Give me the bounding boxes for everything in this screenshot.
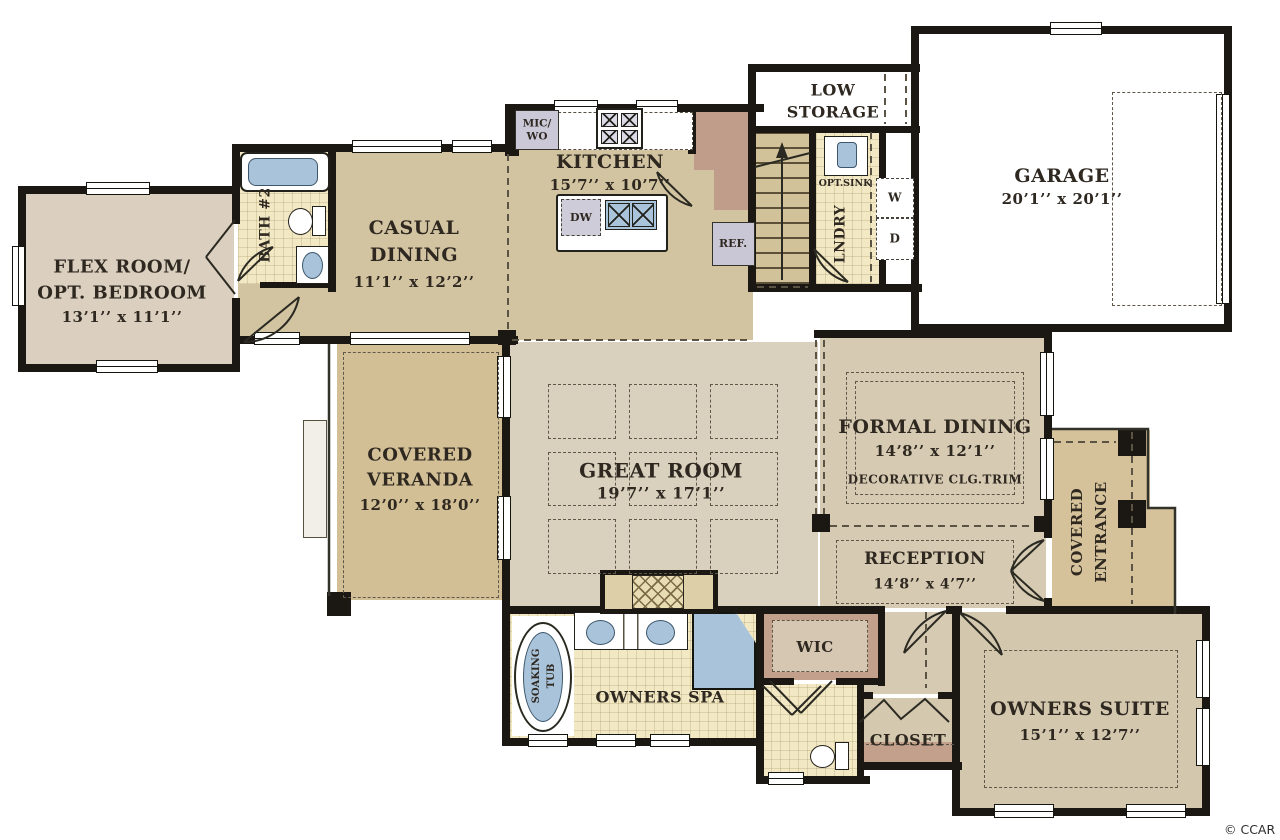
window	[254, 332, 300, 345]
floor-plan: FLEX ROOM/ OPT. BEDROOM 13’1’’ x 11’1’’ …	[0, 0, 1280, 840]
reception-dims: 14’8’’ x 4’7’’	[873, 578, 976, 593]
fireplace-hatch	[632, 575, 684, 609]
formal-dining-note: DECORATIVE CLG.TRIM	[848, 474, 1023, 487]
burner-icon	[601, 113, 618, 127]
watermark: © CCAR	[1224, 822, 1275, 837]
wall	[502, 416, 510, 498]
flex-room-label2: OPT. BEDROOM	[37, 285, 207, 304]
window	[994, 804, 1054, 818]
burner-icon	[621, 130, 638, 144]
window	[1050, 22, 1102, 35]
room-floor	[714, 168, 750, 210]
wall	[1044, 330, 1052, 354]
veranda-label: COVERED	[367, 447, 472, 466]
window	[86, 182, 150, 195]
window	[768, 772, 804, 785]
room-floor	[756, 132, 811, 284]
wall	[756, 606, 764, 784]
wall	[1044, 416, 1052, 440]
garage-door-clearance	[1112, 92, 1222, 306]
cooktop	[596, 108, 643, 149]
wall	[1006, 606, 1210, 614]
opt-sink-label: OPT.SINK	[819, 179, 872, 189]
dryer-label: D	[890, 233, 901, 246]
window	[12, 246, 25, 306]
covered-entrance-label2: ENTRANCE	[1094, 481, 1110, 583]
window	[1040, 352, 1054, 416]
window	[596, 734, 636, 747]
wall-post	[498, 330, 516, 345]
opt-sink-basin	[837, 142, 857, 168]
wall	[232, 144, 240, 194]
bathtub-basin	[248, 158, 318, 186]
kitchen-dims: 15’7’’ x 10’7’’	[550, 178, 671, 194]
toilet-bowl	[810, 745, 835, 768]
veranda-dims: 12’0’’ x 18’0’’	[360, 498, 481, 514]
soaking-tub-label2: TUB	[547, 664, 558, 689]
wall	[714, 606, 884, 614]
spa-sink-basin	[586, 620, 615, 645]
spa-sink-basin	[646, 620, 675, 645]
wall	[748, 284, 922, 292]
wall	[857, 692, 873, 699]
veranda-steps	[303, 420, 327, 538]
casual-dining-dims: 11’1’’ x 12’2’’	[354, 275, 475, 291]
window	[528, 734, 568, 747]
room-floor	[24, 192, 234, 366]
window	[96, 360, 158, 373]
wall-post	[1118, 428, 1146, 456]
wall	[748, 126, 920, 133]
casual-dining-label2: DINING	[370, 246, 458, 266]
micwo-label2: WO	[527, 131, 548, 142]
toilet-tank	[312, 206, 326, 236]
reception-label: RECEPTION	[864, 551, 986, 569]
toilet-tank	[835, 742, 849, 770]
window	[1196, 708, 1210, 766]
window	[497, 356, 511, 418]
soaking-tub-label: SOAKING	[532, 649, 543, 704]
owners-suite-label: OWNERS SUITE	[990, 700, 1170, 720]
window	[350, 332, 470, 345]
sink-bowl-icon	[608, 203, 630, 227]
formal-dining-dims: 14’8’’ x 12’1’’	[875, 444, 996, 460]
window	[497, 496, 511, 560]
island-sink	[605, 200, 657, 230]
flex-room-label: FLEX ROOM/	[53, 259, 190, 278]
sink-basin	[302, 252, 323, 279]
wall	[878, 606, 885, 686]
washer-label: W	[888, 192, 902, 205]
wall-post	[1034, 516, 1050, 532]
dw-label: DW	[570, 212, 592, 224]
window	[1196, 640, 1210, 698]
covered-entrance-label: COVERED	[1070, 488, 1086, 576]
room-floor	[694, 110, 750, 170]
garage-dims: 20’1’’ x 20’1’’	[1002, 192, 1123, 208]
owners-spa-label: OWNERS SPA	[596, 690, 725, 707]
casual-dining-label: CASUAL	[369, 219, 460, 239]
wic-label: WIC	[796, 640, 833, 656]
wall-post	[1118, 500, 1146, 528]
flex-room-dims: 13’1’’ x 11’1’’	[62, 310, 183, 326]
window	[1040, 438, 1054, 500]
garage-label: GARAGE	[1014, 167, 1109, 187]
wall-post	[812, 514, 830, 532]
wall	[814, 330, 1052, 338]
wall	[809, 126, 816, 292]
closet-label: CLOSET	[870, 733, 947, 750]
wall	[857, 762, 962, 770]
laundry-label: LNDRY	[834, 205, 849, 263]
formal-dining-label: FORMAL DINING	[838, 418, 1031, 438]
wall	[232, 144, 336, 152]
ref-label: REF.	[719, 238, 747, 250]
owners-suite-dims: 15’1’’ x 12’7’’	[1020, 728, 1141, 744]
veranda-label2: VERANDA	[367, 472, 473, 491]
window	[1126, 804, 1186, 818]
great-room-dims: 19’7’’ x 17’1’’	[597, 486, 725, 503]
low-storage-label: LOW	[811, 83, 856, 100]
wall	[502, 606, 510, 746]
room-floor	[1150, 508, 1176, 614]
bath2-label: BATH #2	[259, 187, 274, 262]
sink-bowl-icon	[632, 203, 654, 227]
burner-icon	[621, 113, 638, 127]
window	[352, 140, 442, 153]
burner-icon	[601, 130, 618, 144]
toilet-bowl	[288, 208, 313, 235]
great-room-label: GREAT ROOM	[579, 461, 743, 482]
window	[452, 140, 492, 153]
kitchen-label: KITCHEN	[556, 153, 664, 173]
wall	[232, 298, 240, 372]
low-storage-label2: STORAGE	[787, 105, 879, 122]
wall	[748, 64, 920, 72]
wall	[756, 678, 794, 685]
micwo-label: MIC/	[523, 118, 552, 129]
wall	[952, 606, 960, 816]
window	[650, 734, 690, 747]
